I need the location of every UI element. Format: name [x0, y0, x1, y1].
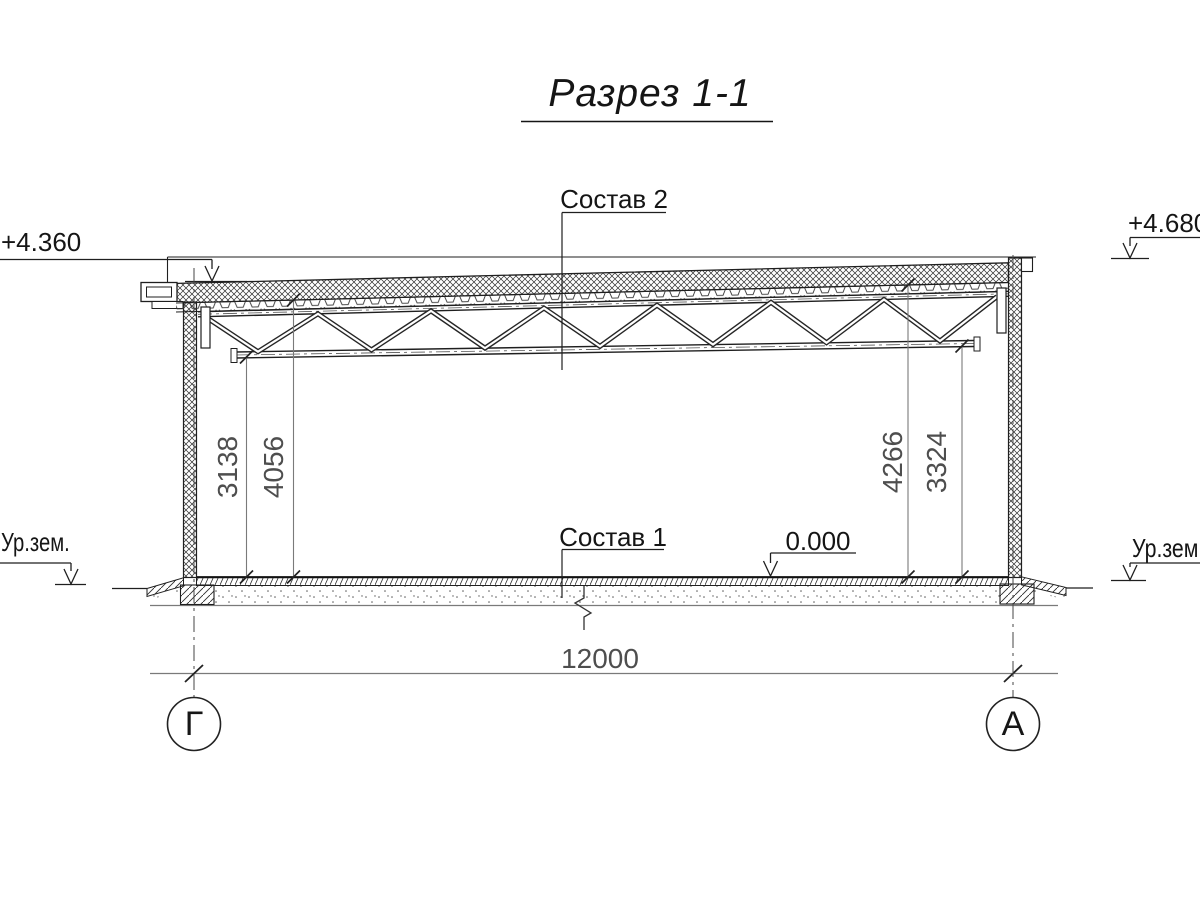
elevation-label-right: +4.680 — [1128, 210, 1200, 236]
dim-left-top-height: 4056 — [260, 402, 288, 532]
roof-layers-label: Состав 2 — [554, 186, 674, 212]
wall-right — [1009, 258, 1033, 578]
wall-left — [184, 302, 197, 578]
ground-level-label-left: Ур.зем. — [1, 529, 70, 555]
axis-label-right: А — [973, 707, 1053, 741]
floor-layers-label: Состав 1 — [553, 524, 673, 550]
axis-label-left: Г — [154, 707, 234, 741]
dim-span: 12000 — [540, 645, 660, 673]
axis-bubbles — [168, 698, 1040, 751]
elevation-label-left: +4.360 — [1, 229, 81, 255]
ground-level-mark-right — [1111, 563, 1200, 581]
section-drawing: Разрез 1-1 +4.360 +4.680 Ур.зем. Ур.зем.… — [0, 0, 1200, 900]
drawing-canvas — [0, 0, 1200, 900]
foundation-left — [181, 585, 215, 605]
dim-left-clear-height: 3138 — [214, 402, 242, 532]
ground-level-mark-left — [0, 563, 86, 585]
apron-left — [112, 578, 184, 601]
elevation-mark-right — [1111, 238, 1200, 259]
ground-level-label-right: Ур.зем. — [1132, 535, 1200, 561]
floor-slab — [150, 577, 1058, 605]
zero-level-mark — [764, 553, 857, 576]
drawing-title: Разрез 1-1 — [500, 74, 800, 113]
zero-level-label: 0.000 — [776, 528, 860, 554]
dim-right-top-height: 4266 — [879, 397, 907, 527]
elevation-mark-left — [0, 260, 247, 282]
dim-right-clear-height: 3324 — [923, 397, 951, 527]
